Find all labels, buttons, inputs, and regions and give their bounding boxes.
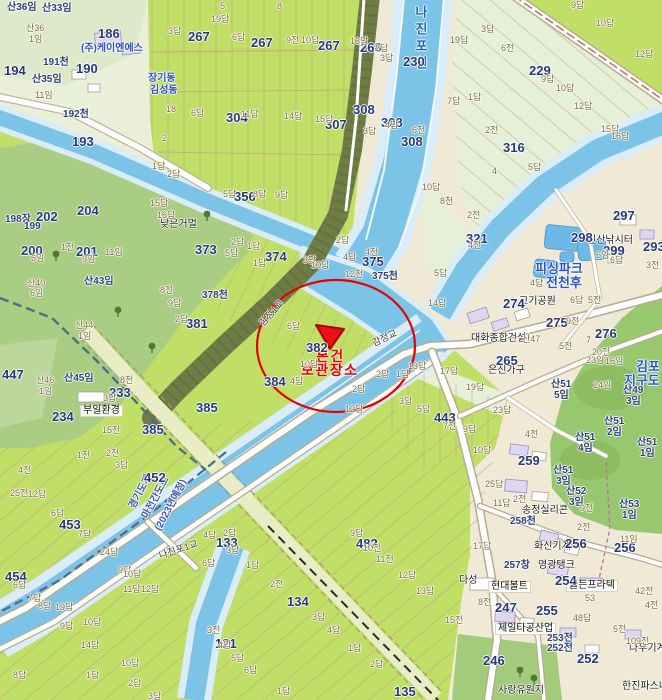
map-base-art <box>0 0 662 700</box>
map-canvas[interactable]: 본건보관장소나진포천감정1교감정교나진포1교경기도계마전간도로(2023년예정)… <box>0 0 662 700</box>
